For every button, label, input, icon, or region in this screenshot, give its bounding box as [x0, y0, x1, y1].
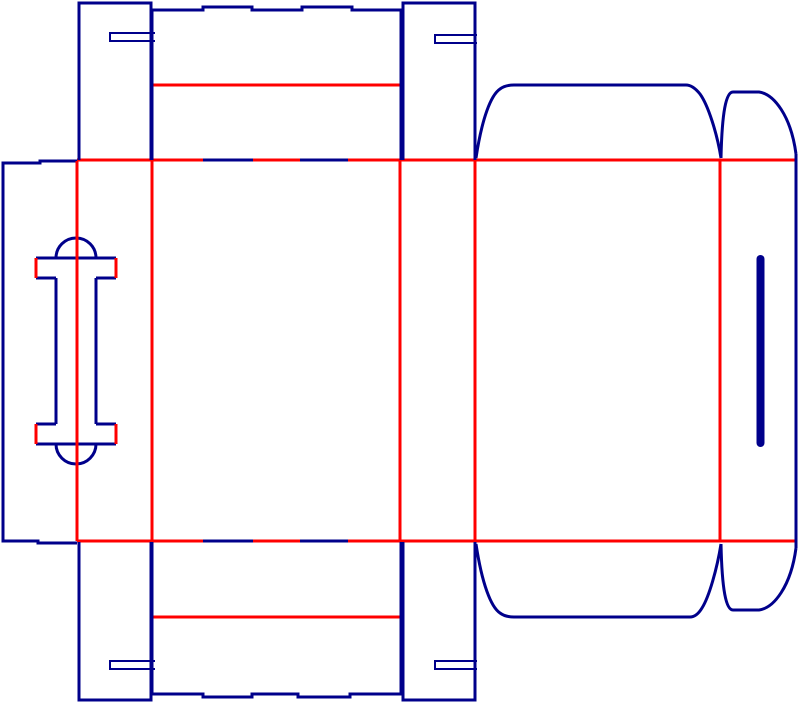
dieline-svg [0, 0, 800, 704]
right-panel-finger-slot [757, 255, 765, 447]
bottom-left-lock-slit [110, 661, 155, 669]
top-left-dust-flap [79, 3, 151, 160]
bottom-left-dust-flap [79, 542, 151, 700]
top-left-lock-slit [110, 33, 155, 41]
top-right-dust-flap [403, 3, 475, 160]
top-dome-flap [721, 92, 796, 158]
bottom-right-lock-slit [435, 661, 477, 669]
crease-lines [77, 85, 796, 617]
bottom-wide-flap [152, 542, 401, 697]
bottom-main-flap [476, 544, 721, 617]
dieline-canvas [0, 0, 800, 704]
top-right-lock-slit [435, 35, 477, 43]
glue-panel-outline [3, 161, 77, 543]
top-main-flap [476, 85, 721, 158]
bottom-dome-flap [721, 544, 796, 610]
bottom-right-dust-flap [403, 542, 475, 700]
crease-lines-over-handle [36, 161, 116, 541]
